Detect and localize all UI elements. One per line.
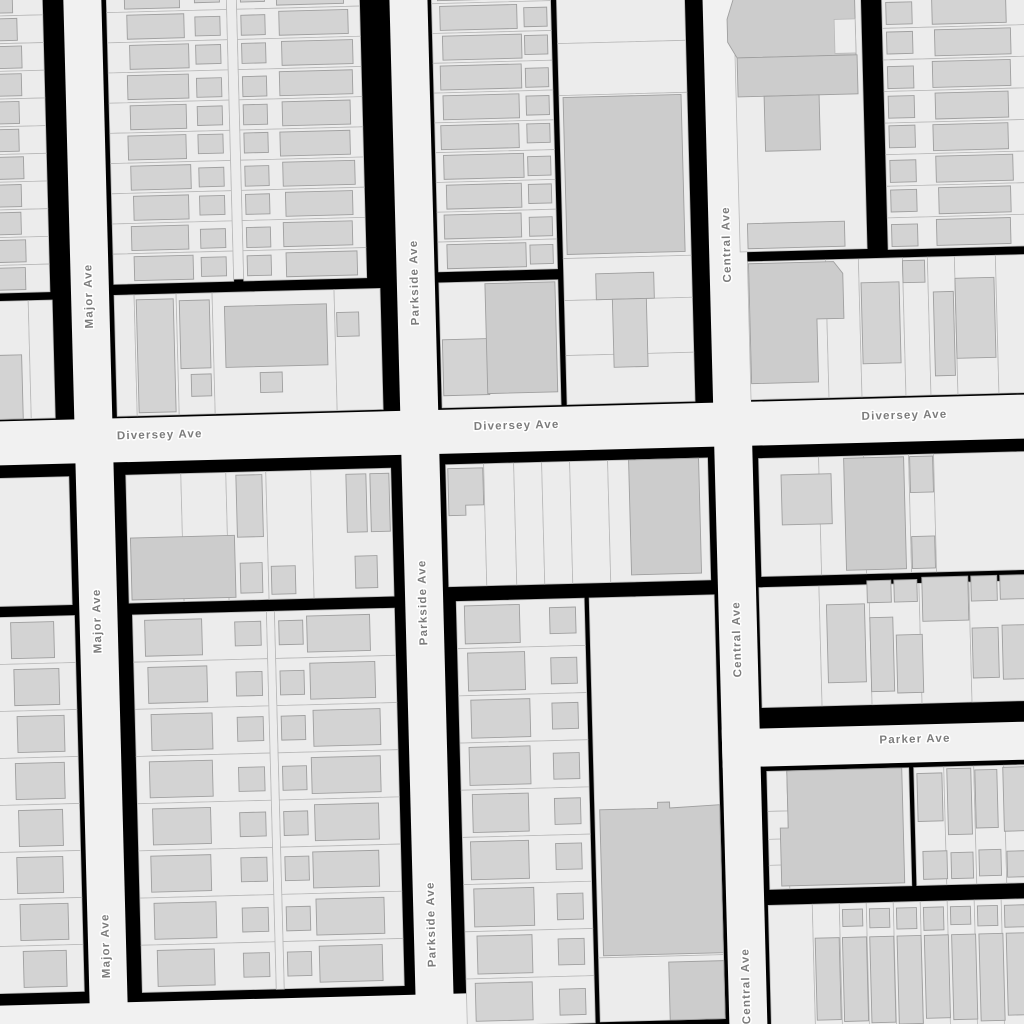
- building-footprint: [200, 229, 225, 249]
- building-footprint: [246, 227, 271, 248]
- building-footprint: [197, 106, 222, 126]
- building-footprint: [313, 850, 380, 888]
- building-footprint: [130, 535, 236, 600]
- building-footprint: [867, 580, 892, 603]
- building-footprint: [240, 563, 263, 594]
- building-footprint: [936, 154, 1014, 182]
- parcel-map-svg: Major AveMajor AveMajor AveParkside AveP…: [0, 0, 1024, 1024]
- building-footprint: [886, 2, 913, 25]
- building-footprint: [281, 716, 306, 741]
- building-footprint: [554, 798, 581, 825]
- building-footprint: [979, 849, 1002, 876]
- building-footprint: [285, 191, 353, 217]
- building-footprint: [764, 95, 820, 151]
- building-footprint: [0, 240, 26, 263]
- building-footprint: [556, 843, 583, 870]
- parcel: [768, 904, 816, 1024]
- building-footprint: [844, 457, 907, 571]
- building-footprint: [472, 793, 529, 832]
- street-label-parkside-ave: Parkside Ave: [425, 881, 439, 967]
- building-footprint: [896, 908, 917, 930]
- building-footprint: [549, 607, 576, 634]
- building-footprint: [779, 768, 905, 886]
- building-footprint: [890, 160, 917, 183]
- parcel: [759, 586, 822, 708]
- building-footprint: [897, 935, 923, 1024]
- building-footprint: [199, 167, 224, 187]
- building-footprint: [815, 938, 841, 1021]
- building-footprint: [600, 801, 724, 956]
- building-footprint: [260, 372, 283, 393]
- building-footprint: [887, 66, 914, 89]
- building-footprint: [468, 652, 526, 691]
- building-footprint: [130, 44, 190, 70]
- building-footprint: [559, 988, 586, 1015]
- building-footprint: [935, 91, 1009, 119]
- building-footprint: [131, 225, 189, 250]
- building-footprint: [235, 621, 262, 646]
- building-footprint: [133, 195, 189, 220]
- building-footprint: [902, 260, 925, 283]
- building-footprint: [1006, 933, 1024, 1016]
- building-footprint: [979, 933, 1005, 1021]
- building-footprint: [912, 536, 936, 569]
- building-footprint: [529, 217, 552, 237]
- building-footprint: [236, 475, 264, 538]
- building-footprint: [528, 184, 551, 204]
- parcel: [542, 462, 573, 585]
- street-label-central-ave: Central Ave: [739, 948, 753, 1024]
- building-footprint: [201, 257, 226, 277]
- building-footprint: [224, 304, 328, 368]
- building-footprint: [972, 627, 999, 678]
- building-footprint: [551, 657, 578, 684]
- building-footprint: [14, 668, 60, 705]
- building-footprint: [313, 709, 381, 747]
- building-footprint: [286, 906, 311, 931]
- building-footprint: [924, 935, 950, 1019]
- building-footprint: [136, 299, 176, 413]
- building-footprint: [475, 982, 533, 1021]
- building-footprint: [477, 935, 533, 974]
- building-footprint: [552, 702, 579, 729]
- building-footprint: [241, 15, 266, 36]
- building-footprint: [474, 887, 535, 927]
- parcel: [114, 295, 137, 416]
- building-footprint: [0, 268, 26, 291]
- building-footprint: [861, 282, 901, 364]
- parcel: [0, 477, 72, 607]
- building-footprint: [242, 43, 267, 64]
- building-footprint: [971, 575, 998, 601]
- building-footprint: [11, 622, 55, 659]
- building-footprint: [933, 123, 1009, 151]
- building-footprint: [279, 9, 349, 35]
- building-footprint: [128, 135, 187, 161]
- building-footprint: [284, 811, 309, 836]
- building-footprint: [842, 937, 868, 1022]
- building-footprint: [936, 217, 1011, 245]
- building-footprint: [124, 0, 180, 9]
- building-footprint: [17, 856, 64, 893]
- building-footprint: [0, 0, 13, 13]
- building-footprint: [444, 213, 522, 239]
- building-footprint: [195, 16, 220, 36]
- building-footprint: [950, 906, 970, 925]
- building-footprint: [314, 803, 379, 841]
- building-footprint: [886, 31, 913, 54]
- parcel: [556, 0, 686, 44]
- building-footprint: [1007, 851, 1024, 878]
- building-footprint: [319, 945, 383, 983]
- building-footprint: [917, 773, 943, 822]
- building-footprint: [932, 59, 1011, 87]
- building-footprint: [471, 699, 531, 739]
- building-footprint: [179, 300, 211, 369]
- building-footprint: [0, 74, 22, 97]
- building-footprint: [781, 474, 832, 525]
- building-footprint: [240, 812, 267, 837]
- building-footprint: [0, 355, 23, 420]
- building-footprint: [952, 934, 978, 1020]
- building-footprint: [198, 134, 223, 154]
- building-footprint: [747, 221, 845, 249]
- street-label-diversey-ave: Diversey Ave: [117, 428, 203, 442]
- building-footprint: [888, 96, 915, 119]
- building-footprint: [553, 753, 580, 780]
- building-footprint: [525, 68, 548, 88]
- building-footprint: [346, 474, 368, 533]
- parcel: [558, 40, 687, 95]
- parcel: [28, 300, 55, 419]
- building-footprint: [0, 18, 17, 41]
- building-footprint: [15, 762, 65, 799]
- building-footprint: [471, 840, 530, 880]
- building-footprint: [279, 70, 353, 96]
- building-footprint: [0, 46, 22, 69]
- building-footprint: [1003, 767, 1024, 832]
- building-footprint: [0, 185, 22, 208]
- building-footprint: [934, 28, 1011, 56]
- building-footprint: [933, 291, 955, 375]
- building-footprint: [243, 953, 270, 978]
- building-footprint: [563, 94, 685, 254]
- building-footprint: [286, 251, 358, 277]
- building-footprint: [196, 78, 221, 98]
- building-footprint: [442, 34, 522, 60]
- building-footprint: [737, 55, 858, 97]
- building-footprint: [975, 769, 999, 828]
- building-footprint: [1000, 575, 1024, 600]
- building-footprint: [145, 619, 203, 656]
- building-footprint: [200, 195, 225, 215]
- building-footprint: [279, 620, 304, 645]
- building-footprint: [557, 893, 584, 920]
- building-footprint: [242, 907, 269, 932]
- building-footprint: [669, 961, 725, 1020]
- building-footprint: [558, 938, 585, 965]
- building-footprint: [127, 74, 189, 100]
- building-footprint: [826, 604, 866, 683]
- building-footprint: [932, 0, 1007, 24]
- building-footprint: [127, 14, 185, 39]
- building-footprint: [443, 94, 520, 120]
- building-footprint: [923, 851, 948, 880]
- building-footprint: [285, 856, 310, 881]
- building-footprint: [271, 566, 296, 595]
- building-footprint: [282, 100, 351, 126]
- building-footprint: [524, 35, 547, 55]
- building-footprint: [891, 189, 918, 212]
- building-footprint: [842, 909, 862, 927]
- building-footprint: [243, 104, 268, 125]
- building-footprint: [337, 312, 360, 337]
- building-footprint: [287, 951, 312, 976]
- building-footprint: [939, 186, 1012, 214]
- building-footprint: [370, 473, 391, 531]
- building-footprint: [0, 129, 19, 152]
- building-footprint: [130, 104, 187, 129]
- building-footprint: [596, 272, 655, 300]
- building-footprint: [922, 576, 969, 621]
- building-footprint: [0, 101, 20, 124]
- parcel: [334, 288, 383, 410]
- building-footprint: [447, 243, 527, 269]
- building-footprint: [896, 634, 924, 693]
- building-footprint: [485, 282, 558, 394]
- building-footprint: [526, 96, 549, 116]
- building-footprint: [869, 908, 889, 928]
- building-footprint: [524, 7, 547, 27]
- building-footprint: [530, 244, 553, 264]
- building-footprint: [282, 766, 307, 791]
- parcel: [514, 462, 545, 585]
- building-footprint: [441, 124, 520, 150]
- street-label-central-ave: Central Ave: [730, 601, 744, 678]
- building-footprint: [283, 221, 353, 247]
- building-footprint: [870, 617, 895, 692]
- building-footprint: [612, 298, 648, 367]
- building-footprint: [280, 130, 351, 156]
- building-footprint: [153, 807, 212, 845]
- building-footprint: [191, 374, 212, 397]
- building-footprint: [891, 224, 918, 247]
- building-footprint: [446, 183, 522, 209]
- parcel: [570, 461, 611, 584]
- building-footprint: [245, 194, 270, 215]
- building-footprint: [527, 123, 550, 143]
- parcel: [767, 771, 788, 812]
- building-footprint: [23, 950, 67, 987]
- building-footprint: [977, 905, 998, 926]
- building-footprint: [923, 907, 944, 931]
- building-footprint: [307, 614, 371, 652]
- building-footprint: [196, 44, 221, 64]
- building-footprint: [151, 855, 212, 893]
- building-footprint: [151, 713, 213, 751]
- building-footprint: [889, 125, 916, 148]
- street-label-diversey-ave: Diversey Ave: [861, 409, 947, 423]
- parcel: [834, 19, 856, 54]
- building-footprint: [311, 756, 381, 794]
- building-footprint: [469, 746, 531, 786]
- building-footprint: [951, 852, 974, 879]
- building-footprint: [17, 715, 65, 752]
- building-footprint: [237, 717, 264, 742]
- building-footprint: [355, 556, 378, 589]
- building-footprint: [316, 897, 385, 935]
- street-label-major-ave: Major Ave: [99, 913, 113, 978]
- building-footprint: [955, 277, 996, 358]
- building-footprint: [280, 670, 305, 695]
- street-label-major-ave: Major Ave: [82, 263, 96, 328]
- building-footprint: [236, 671, 263, 696]
- building-footprint: [240, 0, 265, 2]
- building-footprint: [1004, 905, 1024, 928]
- building-footprint: [910, 456, 934, 493]
- building-footprint: [244, 132, 269, 153]
- street-label-central-ave: Central Ave: [720, 206, 734, 283]
- street-label-parkside-ave: Parkside Ave: [408, 239, 422, 325]
- building-footprint: [241, 857, 268, 882]
- building-footprint: [310, 661, 376, 699]
- street-label-parkside-ave: Parkside Ave: [416, 559, 430, 645]
- building-footprint: [442, 339, 489, 396]
- building-footprint: [281, 40, 353, 66]
- building-footprint: [444, 153, 525, 179]
- building-footprint: [894, 579, 918, 602]
- parcel: [484, 463, 517, 586]
- building-footprint: [148, 666, 208, 704]
- building-footprint: [464, 604, 520, 643]
- building-footprint: [157, 949, 215, 986]
- building-footprint: [440, 4, 518, 30]
- building-footprint: [134, 255, 194, 281]
- building-footprint: [149, 760, 213, 798]
- building-footprint: [247, 255, 272, 276]
- building-footprint: [242, 76, 267, 97]
- building-footprint: [440, 64, 522, 90]
- building-footprint: [194, 0, 219, 3]
- parcel: [934, 451, 1024, 572]
- building-footprint: [20, 903, 69, 940]
- building-footprint: [947, 768, 973, 835]
- building-footprint: [0, 212, 21, 235]
- map-canvas[interactable]: Major AveMajor AveMajor AveParkside AveP…: [0, 0, 1024, 1024]
- building-footprint: [19, 809, 64, 846]
- parcel: [995, 254, 1024, 393]
- building-footprint: [0, 157, 24, 180]
- building-footprint: [528, 156, 551, 176]
- building-footprint: [870, 936, 896, 1023]
- building-footprint: [245, 166, 270, 187]
- street-label-parker-ave: Parker Ave: [879, 733, 951, 747]
- building-footprint: [238, 767, 265, 792]
- building-footprint: [154, 902, 217, 940]
- building-footprint: [1002, 625, 1024, 680]
- street-label-diversey-ave: Diversey Ave: [474, 419, 560, 433]
- building-footprint: [283, 160, 356, 186]
- building-footprint: [629, 458, 702, 575]
- building-footprint: [131, 165, 192, 191]
- street-label-major-ave: Major Ave: [91, 588, 105, 653]
